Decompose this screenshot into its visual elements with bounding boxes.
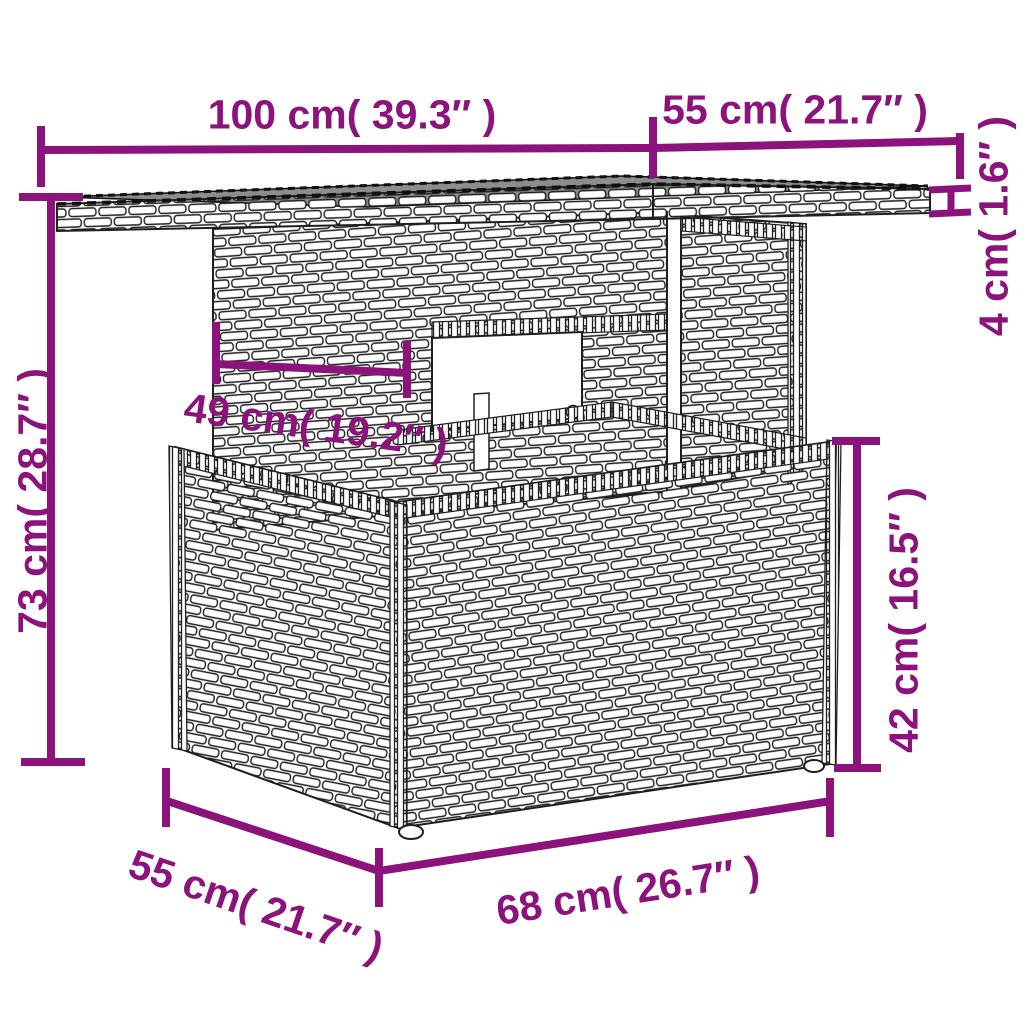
storage-base (169, 440, 841, 839)
dimension-label-base-height: 42 cm( 16.5″ ) (884, 487, 925, 753)
base-corner-roll-front (390, 501, 407, 830)
dimension-line-top-depth (653, 133, 960, 179)
base-corner-roll-back-left (169, 446, 187, 751)
base-foot-right (804, 760, 824, 772)
dimension-label-total-height: 73 cm( 28.7″ ) (13, 368, 54, 634)
dimension-label-top-thickness: 4 cm( 1.6″ ) (974, 116, 1015, 336)
dimension-label-top-width: 100 cm( 39.3″ ) (208, 95, 497, 136)
dimension-diagram: 100 cm( 39.3″ ) 55 cm( 21.7″ ) 4 cm( 1.6… (0, 0, 1024, 1024)
dimension-label-top-depth: 55 cm( 21.7″ ) (662, 90, 928, 131)
base-foot-front (399, 825, 423, 839)
dimension-line-top-thickness (929, 188, 971, 214)
